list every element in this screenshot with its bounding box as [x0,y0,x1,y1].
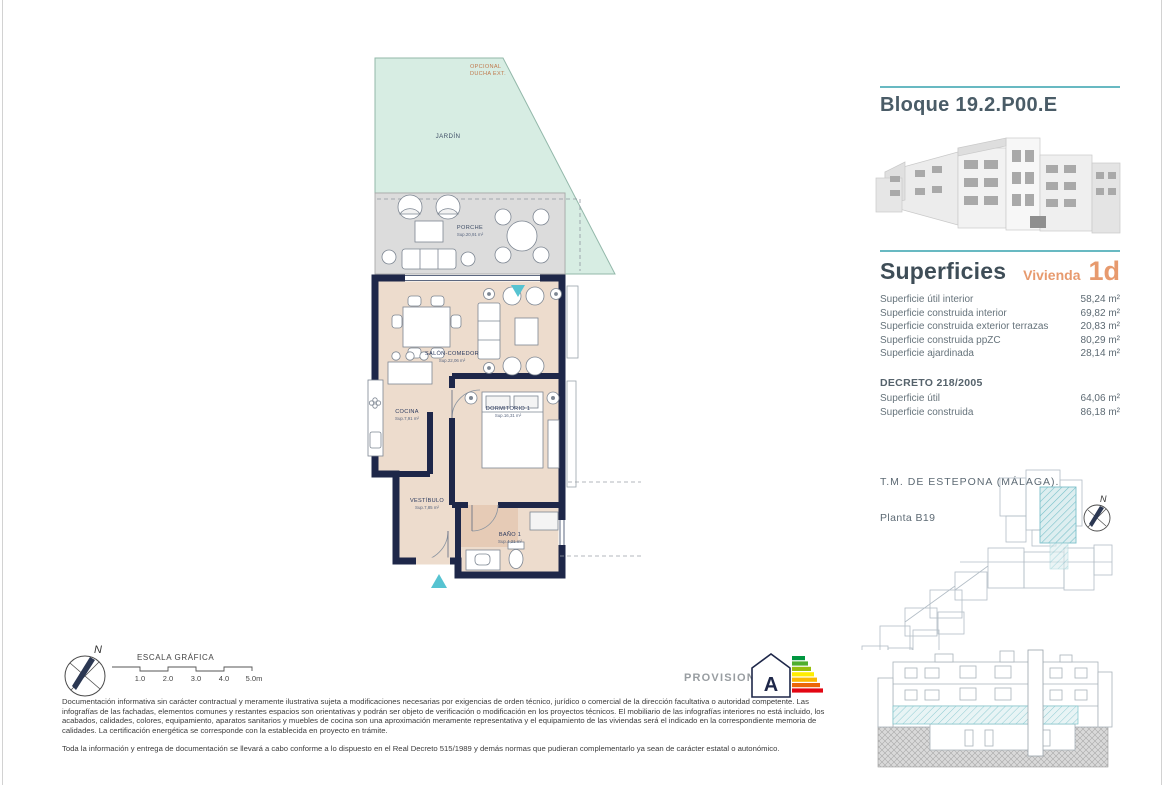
teal-rule-mid [880,250,1120,252]
surface-row: Superficie construida86,18 m² [880,406,1120,420]
teal-rule-top [880,86,1120,88]
site-compass-icon: N [1084,494,1110,531]
bath-label: BAÑO 1 [499,531,521,538]
surface-label: Superficie construida ppZC [880,334,1001,348]
surface-label: Superficie ajardinada [880,347,974,361]
porch-sup: Sup.20,91 m² [457,232,484,237]
disclaimer-paragraph-2: Toda la información y entrega de documen… [62,744,834,754]
floor-plan-drawing: JARDÍN OPCIONAL DUCHA EXT. PORCHE Sup.20… [0,40,880,660]
site-key-plan: N [856,465,1166,650]
surface-label: Superficie útil [880,392,940,406]
surface-row: Superficie construida ppZC80,29 m² [880,334,1120,348]
unit-highlight-hatch [1040,487,1076,543]
bedroom-label: DORMITORIO 1 [486,406,531,412]
surface-value: 28,14 m² [1081,347,1120,361]
surface-label: Superficie construida exterior terrazas [880,320,1048,334]
surface-value: 80,29 m² [1081,334,1120,348]
svg-text:4.0: 4.0 [219,674,229,683]
adjacent-outline [567,286,578,487]
hall-sup: Sup.7,85 m² [415,505,439,510]
svg-text:1.0: 1.0 [135,674,145,683]
surface-label: Superficie construida [880,406,973,420]
main-entrance-marker-icon [431,574,447,588]
section-unit-highlight [893,706,1078,724]
bedroom-sup: Sup.16,31 m² [495,413,522,418]
surfaces-title: Superficies [880,258,1006,285]
svg-text:N: N [94,644,102,656]
legal-disclaimer: Documentación informativa sin carácter c… [62,697,834,763]
block-title: Bloque 19.2.P00.E [880,94,1057,117]
living-room-label: SALÓN-COMEDOR [425,350,479,357]
energy-label-icon: A [745,648,827,703]
garden-label-text: JARDÍN [436,133,461,140]
surface-label: Superficie construida interior [880,307,1007,321]
surface-value: 64,06 m² [1081,392,1120,406]
building-render [870,120,1130,250]
surface-row: Superficie construida interior69,82 m² [880,307,1120,321]
surface-value: 58,24 m² [1081,293,1120,307]
living-room-sup: Sup.22,06 m² [439,358,466,363]
svg-text:3.0: 3.0 [191,674,201,683]
surface-row: Superficie ajardinada28,14 m² [880,347,1120,361]
optional-shower-label-1: OPCIONAL [470,64,501,70]
surface-value: 20,83 m² [1081,320,1120,334]
scale-title: ESCALA GRÁFICA [137,653,214,662]
unit-label: Vivienda [1023,267,1080,283]
sheet-border-right [1161,0,1162,785]
energy-bars [792,656,823,693]
optional-shower-label-2: DUCHA EXT. [470,71,506,77]
decree-title: DECRETO 218/2005 [880,377,983,389]
surface-row: Superficie útil64,06 m² [880,392,1120,406]
bath-sup: Sup.4,21 m² [498,539,522,544]
plan-sheet: JARDÍN OPCIONAL DUCHA EXT. PORCHE Sup.20… [0,0,1170,785]
decree-table: Superficie útil64,06 m² Superficie const… [880,392,1120,419]
scale-bar: ESCALA GRÁFICA 1.0 2.0 3.0 4.0 5.0m [105,648,285,688]
building-section [868,643,1160,777]
surface-row: Superficie construida exterior terrazas2… [880,320,1120,334]
surfaces-table: Superficie útil interior58,24 m² Superfi… [880,293,1120,361]
svg-text:A: A [764,674,778,696]
svg-text:2.0: 2.0 [163,674,173,683]
surfaces-header: Superficies Vivienda 1d [880,258,1120,285]
surface-value: 69,82 m² [1081,307,1120,321]
disclaimer-paragraph-1: Documentación informativa sin carácter c… [62,697,834,735]
svg-text:5.0m: 5.0m [246,674,263,683]
surface-value: 86,18 m² [1081,406,1120,420]
surface-row: Superficie útil interior58,24 m² [880,293,1120,307]
kitchen-sup: Sup.7,91 m² [395,416,419,421]
surface-label: Superficie útil interior [880,293,973,307]
unit-code: 1d [1088,258,1120,285]
svg-text:N: N [1100,494,1107,504]
porch-label: PORCHE [457,225,483,231]
kitchen-label: COCINA [395,409,419,415]
hall-label: VESTÍBULO [410,497,444,504]
